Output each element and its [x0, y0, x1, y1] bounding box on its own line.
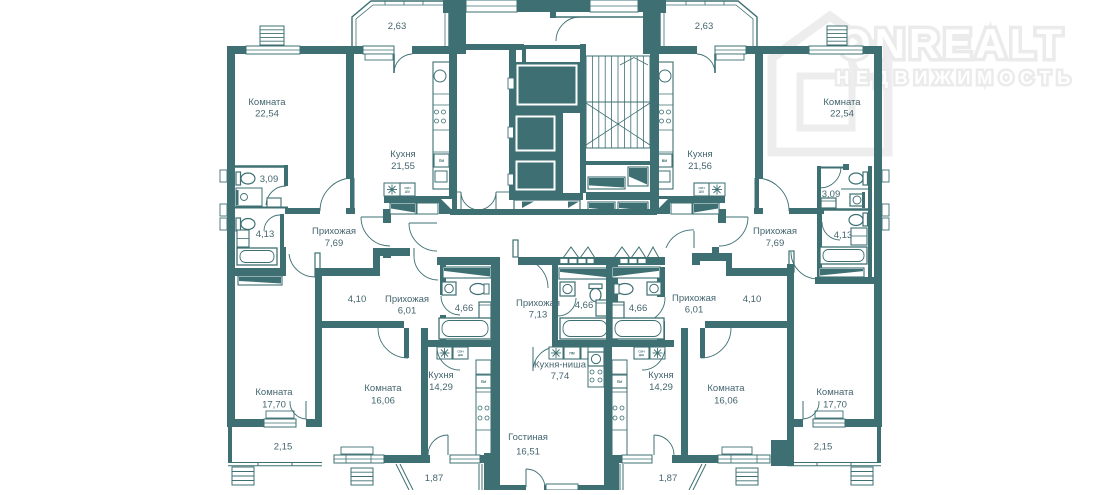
- svg-text:Комната: Комната: [364, 383, 402, 394]
- svg-text:16,06: 16,06: [371, 396, 395, 407]
- svg-text:ПМ: ПМ: [439, 159, 444, 163]
- svg-text:Комната: Комната: [248, 97, 286, 108]
- svg-text:16,06: 16,06: [714, 396, 738, 407]
- svg-text:ПМ: ПМ: [617, 380, 622, 384]
- svg-text:Гостиная: Гостиная: [508, 432, 548, 443]
- svg-text:4,66: 4,66: [575, 300, 594, 311]
- svg-text:14,29: 14,29: [649, 382, 673, 393]
- svg-text:Прихожая: Прихожая: [672, 293, 716, 304]
- svg-text:4,10: 4,10: [348, 294, 367, 305]
- svg-text:2,15: 2,15: [814, 442, 833, 453]
- svg-text:7,74: 7,74: [551, 371, 570, 382]
- svg-text:Кухня: Кухня: [428, 370, 453, 381]
- svg-text:2,15: 2,15: [274, 442, 293, 453]
- svg-text:Кухня-ниша: Кухня-ниша: [534, 360, 587, 371]
- svg-text:3,09: 3,09: [260, 174, 279, 185]
- svg-text:22,54: 22,54: [255, 109, 279, 120]
- svg-text:ДШ: ДШ: [405, 189, 410, 193]
- svg-text:Комната: Комната: [255, 387, 293, 398]
- svg-text:Прихожая: Прихожая: [385, 294, 429, 305]
- svg-text:7,69: 7,69: [766, 238, 785, 249]
- svg-text:7,13: 7,13: [529, 310, 548, 321]
- svg-text:14,29: 14,29: [429, 382, 453, 393]
- svg-text:Прихожая: Прихожая: [312, 226, 356, 237]
- svg-text:1,87: 1,87: [425, 473, 444, 484]
- svg-text:2,63: 2,63: [388, 21, 407, 32]
- svg-text:ПМ: ПМ: [481, 380, 486, 384]
- svg-text:НЕДВИЖИМОСТЬ: НЕДВИЖИМОСТЬ: [836, 67, 1077, 88]
- svg-text:Прихожая: Прихожая: [753, 226, 797, 237]
- svg-text:4,10: 4,10: [743, 294, 762, 305]
- svg-text:21,55: 21,55: [391, 161, 415, 172]
- svg-text:21,56: 21,56: [688, 161, 712, 172]
- svg-text:ДШ: ДШ: [458, 353, 463, 357]
- svg-text:6,01: 6,01: [685, 305, 704, 316]
- svg-text:2,63: 2,63: [695, 21, 714, 32]
- svg-text:ДШ: ДШ: [699, 189, 704, 193]
- svg-text:4,13: 4,13: [834, 230, 853, 241]
- svg-text:Кухня: Кухня: [390, 149, 415, 160]
- svg-text:17,70: 17,70: [823, 400, 847, 411]
- svg-text:16,51: 16,51: [516, 447, 540, 458]
- svg-text:4,66: 4,66: [629, 303, 648, 314]
- svg-text:22,54: 22,54: [830, 109, 854, 120]
- svg-text:4,66: 4,66: [455, 303, 474, 314]
- svg-text:Комната: Комната: [707, 383, 745, 394]
- svg-text:17,70: 17,70: [262, 400, 286, 411]
- svg-text:Комната: Комната: [816, 387, 854, 398]
- svg-text:ПМ: ПМ: [569, 351, 574, 355]
- svg-text:Комната: Комната: [823, 97, 861, 108]
- svg-text:6,01: 6,01: [398, 306, 417, 317]
- svg-text:ДШ: ДШ: [639, 353, 644, 357]
- svg-text:1,87: 1,87: [659, 473, 678, 484]
- svg-text:Кухня: Кухня: [648, 370, 673, 381]
- svg-text:7,69: 7,69: [325, 238, 344, 249]
- svg-text:Кухня: Кухня: [687, 149, 712, 160]
- svg-text:ONREALT: ONREALT: [838, 20, 1066, 67]
- svg-text:ВМ: ВМ: [662, 159, 667, 163]
- svg-text:4,13: 4,13: [256, 229, 275, 240]
